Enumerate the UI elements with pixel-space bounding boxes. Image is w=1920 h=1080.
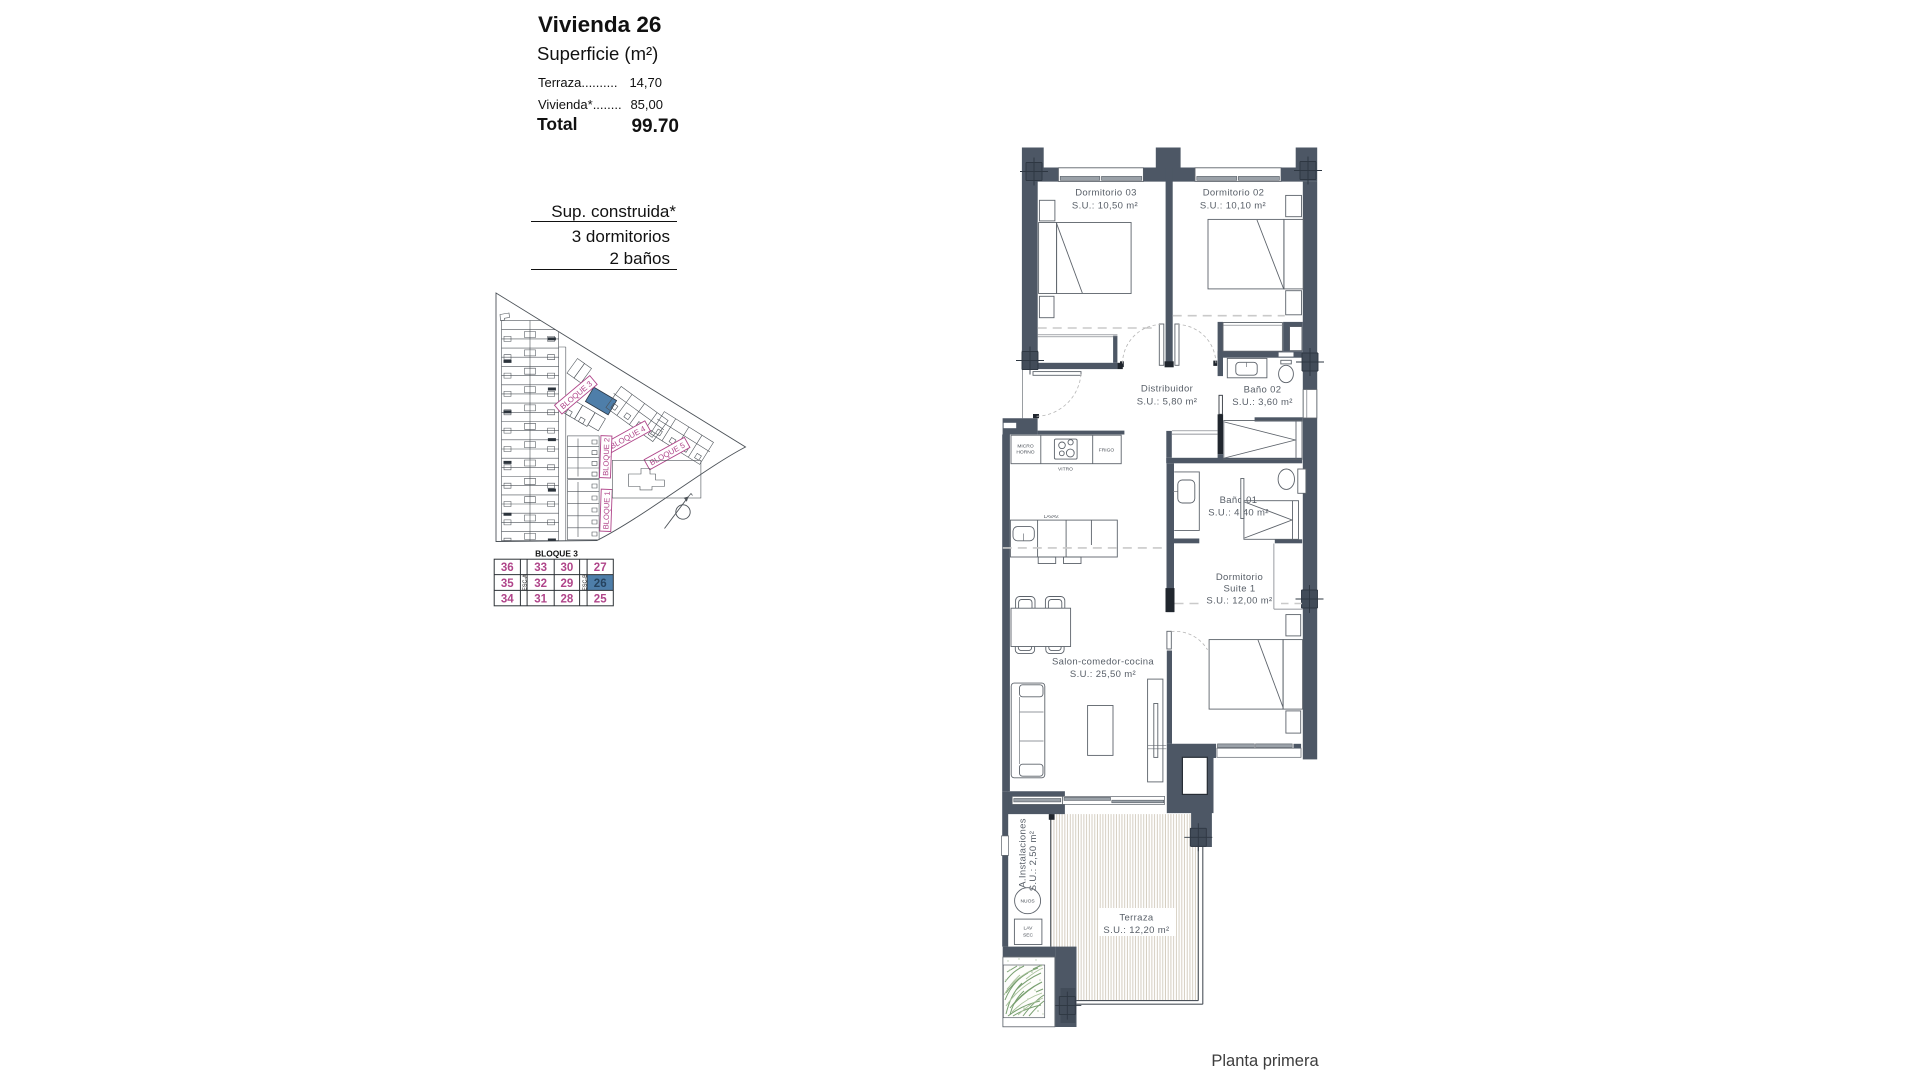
svg-text:S.U.: 10,10 m²: S.U.: 10,10 m² [1200,201,1266,212]
svg-text:32: 32 [534,578,547,590]
svg-text:VITRO: VITRO [1058,467,1073,473]
svg-text:S.U.: 5,80 m²: S.U.: 5,80 m² [1137,397,1198,408]
svg-text:Total: Total [537,114,578,134]
svg-text:3 dormitorios: 3 dormitorios [572,227,670,246]
svg-text:S.U.: 12,00 m²: S.U.: 12,00 m² [1206,596,1272,607]
svg-text:Baño 02: Baño 02 [1244,385,1282,396]
svg-text:26: 26 [594,578,607,590]
svg-text:34: 34 [501,593,514,605]
svg-text:36: 36 [501,562,514,574]
svg-text:Suite 1: Suite 1 [1223,584,1255,595]
svg-text:Distribuidor: Distribuidor [1141,384,1193,395]
svg-text:Vivienda 26: Vivienda 26 [538,12,661,37]
svg-text:ESC-A: ESC-A [523,574,529,591]
svg-text:S.U.: 2,50 m²: S.U.: 2,50 m² [1028,831,1039,892]
svg-text:BLOQUE 2: BLOQUE 2 [601,438,611,476]
svg-text:14,70: 14,70 [629,75,662,90]
svg-text:ESC-B: ESC-B [582,574,588,591]
svg-text:S.U.: 4,40 m²: S.U.: 4,40 m² [1208,508,1269,519]
svg-text:30: 30 [561,562,574,574]
svg-text:35: 35 [501,578,514,590]
svg-text:31: 31 [534,593,547,605]
svg-text:SEC: SEC [1023,933,1034,939]
svg-text:Planta primera: Planta primera [1211,1052,1319,1070]
svg-text:A.Instalaciones: A.Instalaciones [1018,818,1029,888]
svg-text:Salon-comedor-cocina: Salon-comedor-cocina [1052,657,1154,668]
svg-text:2 baños: 2 baños [610,249,671,268]
svg-text:Superficie (m²): Superficie (m²) [537,43,658,64]
svg-text:Terraza..........: Terraza.......... [538,75,617,90]
svg-text:S.U.: 3,60 m²: S.U.: 3,60 m² [1232,397,1293,408]
svg-text:Sup. construida*: Sup. construida* [551,202,676,221]
svg-text:LAV: LAV [1024,926,1034,932]
svg-text:29: 29 [561,578,574,590]
svg-text:S.U.: 25,50 m²: S.U.: 25,50 m² [1070,669,1136,680]
svg-text:Vivienda*........: Vivienda*........ [538,97,622,112]
svg-text:33: 33 [534,562,547,574]
svg-text:Dormitorio 02: Dormitorio 02 [1203,188,1265,199]
svg-text:S.U.: 12,20 m²: S.U.: 12,20 m² [1103,925,1169,936]
svg-text:BLOQUE 3: BLOQUE 3 [535,549,578,559]
svg-text:85,00: 85,00 [630,97,663,112]
svg-text:BLOQUE 1: BLOQUE 1 [601,491,611,529]
svg-text:MICRO: MICRO [1017,444,1033,450]
svg-text:27: 27 [594,562,607,574]
svg-text:FRIGO: FRIGO [1099,448,1115,454]
svg-text:HORNO: HORNO [1016,450,1034,456]
svg-text:Dormitorio: Dormitorio [1216,572,1263,583]
svg-text:NUOS: NUOS [1021,899,1036,905]
svg-text:LAVAV.: LAVAV. [1044,514,1060,520]
svg-text:Terraza: Terraza [1119,913,1153,924]
svg-text:Dormitorio 03: Dormitorio 03 [1075,188,1137,199]
svg-text:25: 25 [594,593,607,605]
svg-text:28: 28 [561,593,574,605]
svg-text:S.U.: 10,50 m²: S.U.: 10,50 m² [1072,201,1138,212]
svg-text:99.70: 99.70 [631,116,679,137]
